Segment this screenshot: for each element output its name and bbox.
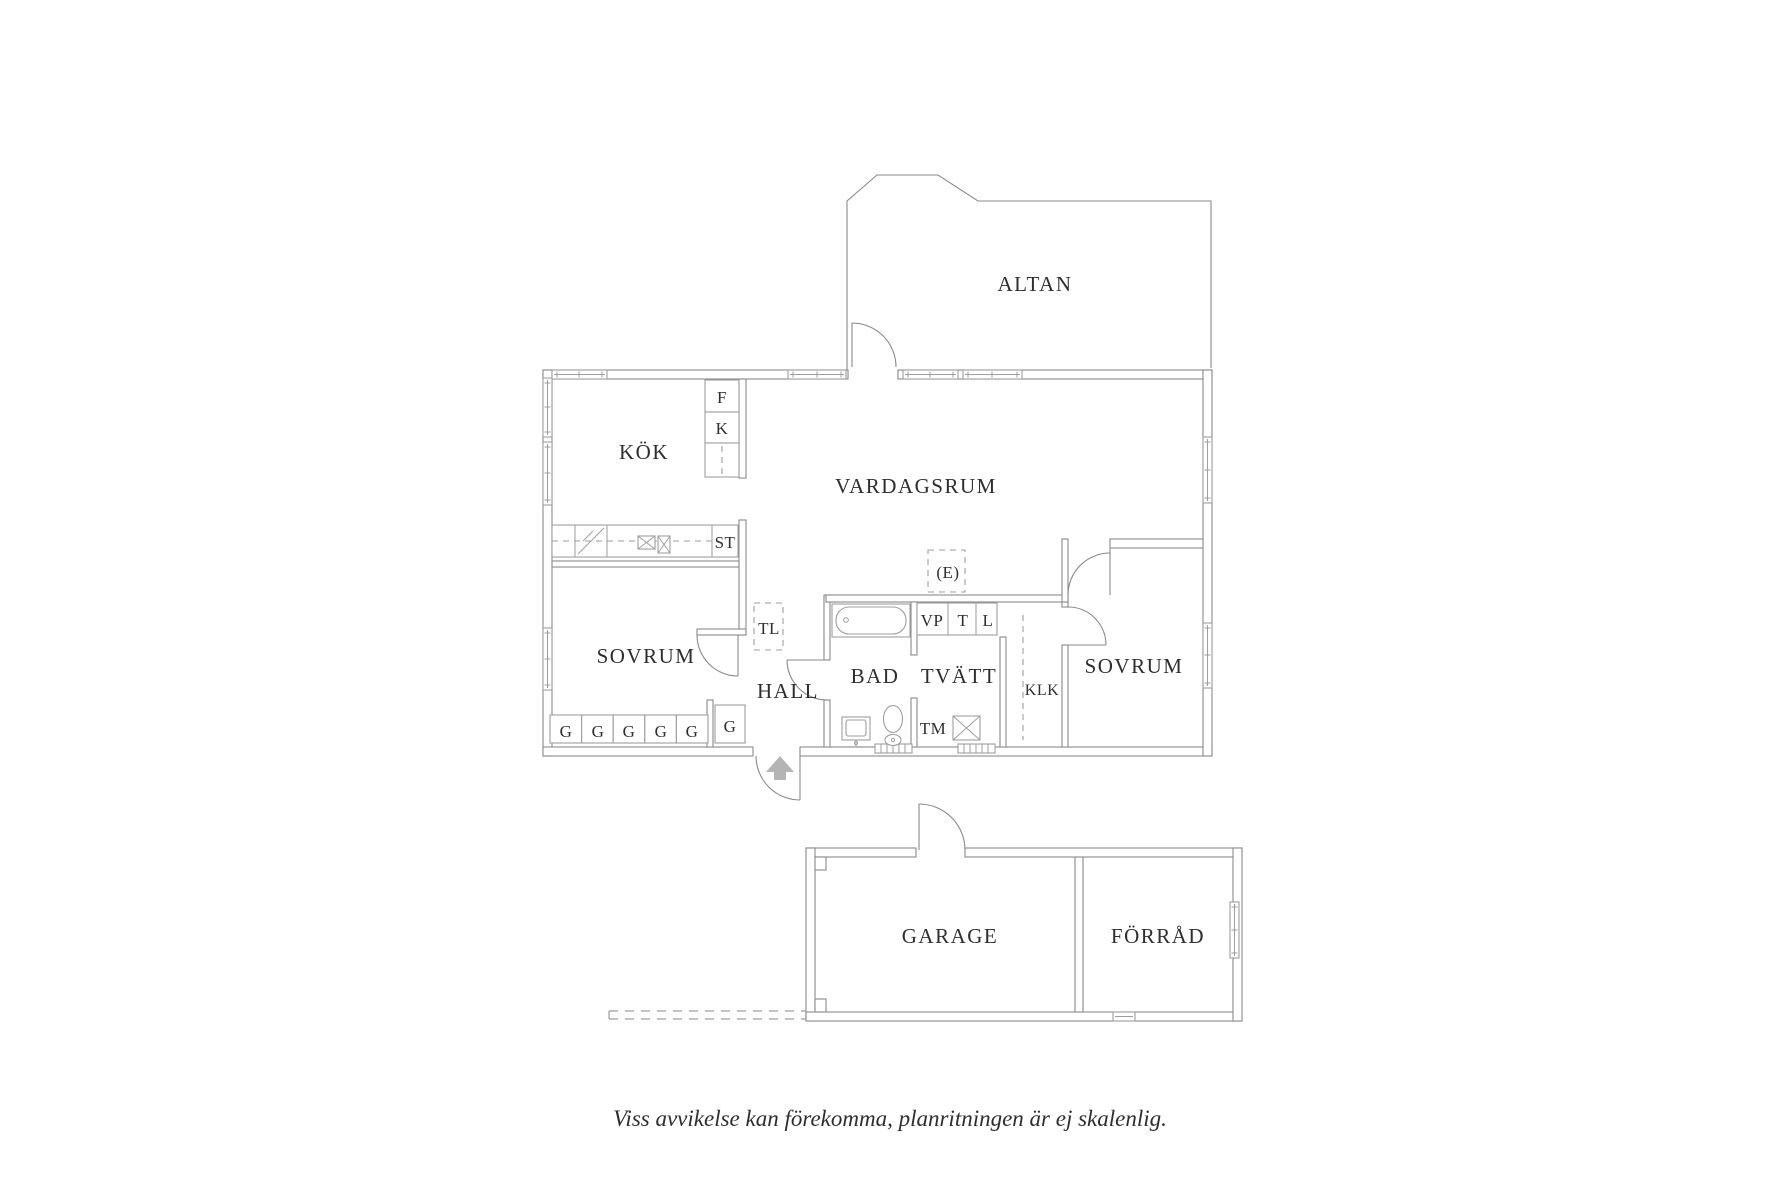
- label-wardrobe: G: [592, 722, 605, 741]
- window-icon: [543, 378, 552, 437]
- sink-icon: [638, 536, 655, 549]
- entrance-arrow-icon: [766, 756, 794, 780]
- room-label-vardagsrum: VARDAGSRUM: [835, 474, 997, 498]
- label-t: T: [958, 611, 969, 630]
- room-label-tvatt: TVÄTT: [921, 664, 997, 688]
- label-wardrobe: G: [623, 722, 636, 741]
- room-label-sovrum-right: SOVRUM: [1085, 654, 1184, 678]
- washing-machine-icon: [953, 716, 980, 740]
- toilet-icon: [884, 706, 903, 746]
- label-tl: TL: [758, 619, 780, 638]
- bathtub-icon: [832, 604, 910, 637]
- window-icon: [543, 442, 552, 505]
- label-fridge: K: [716, 419, 729, 438]
- label-st: ST: [715, 533, 736, 552]
- vent-icon: [1113, 1012, 1135, 1021]
- door-arc: [697, 635, 738, 676]
- room-label-klk: KLK: [1025, 682, 1059, 699]
- door-arc: [1068, 548, 1110, 595]
- room-label-hall: HALL: [757, 679, 819, 703]
- driveway-dashed-lines: [609, 1011, 806, 1019]
- label-electric: (E): [936, 563, 959, 582]
- label-wardrobe: G: [560, 722, 573, 741]
- window-icon: [1230, 902, 1239, 958]
- room-label-garage: GARAGE: [902, 924, 999, 948]
- stove-icon: [658, 536, 670, 553]
- wardrobe-row: [550, 705, 745, 743]
- vent-icon: [958, 744, 995, 753]
- label-wardrobe: G: [655, 722, 668, 741]
- room-label-forrad: FÖRRÅD: [1111, 924, 1205, 948]
- room-label-bad: BAD: [851, 664, 900, 688]
- interior-walls: [552, 379, 1203, 747]
- floorplan-page: ALTAN KÖK VARDAGSRUM SOVRUM HALL BAD TVÄ…: [0, 0, 1780, 1187]
- window-icon: [543, 628, 552, 690]
- room-label-kok: KÖK: [619, 440, 669, 464]
- label-wardrobe: G: [686, 722, 699, 741]
- label-tm: TM: [920, 719, 947, 738]
- door-arc: [919, 804, 965, 850]
- room-label-sovrum-left: SOVRUM: [597, 644, 696, 668]
- window-icon: [1203, 437, 1212, 503]
- window-icon: [552, 370, 607, 379]
- door-arc: [852, 323, 896, 367]
- washbasin-icon: [842, 717, 870, 747]
- label-vp: VP: [921, 611, 944, 630]
- floorplan-drawing: ALTAN KÖK VARDAGSRUM SOVRUM HALL BAD TVÄ…: [0, 0, 1780, 1187]
- label-wardrobe-hall: G: [724, 717, 737, 736]
- window-icon: [1203, 623, 1212, 688]
- window-icon: [903, 370, 958, 379]
- window-icon: [963, 370, 1022, 379]
- label-freezer: F: [717, 388, 727, 407]
- label-l: L: [983, 611, 994, 630]
- room-label-altan: ALTAN: [997, 272, 1072, 296]
- disclaimer-caption: Viss avvikelse kan förekomma, planritnin…: [0, 1106, 1780, 1132]
- door-arc: [1068, 607, 1106, 645]
- window-icon: [788, 370, 846, 379]
